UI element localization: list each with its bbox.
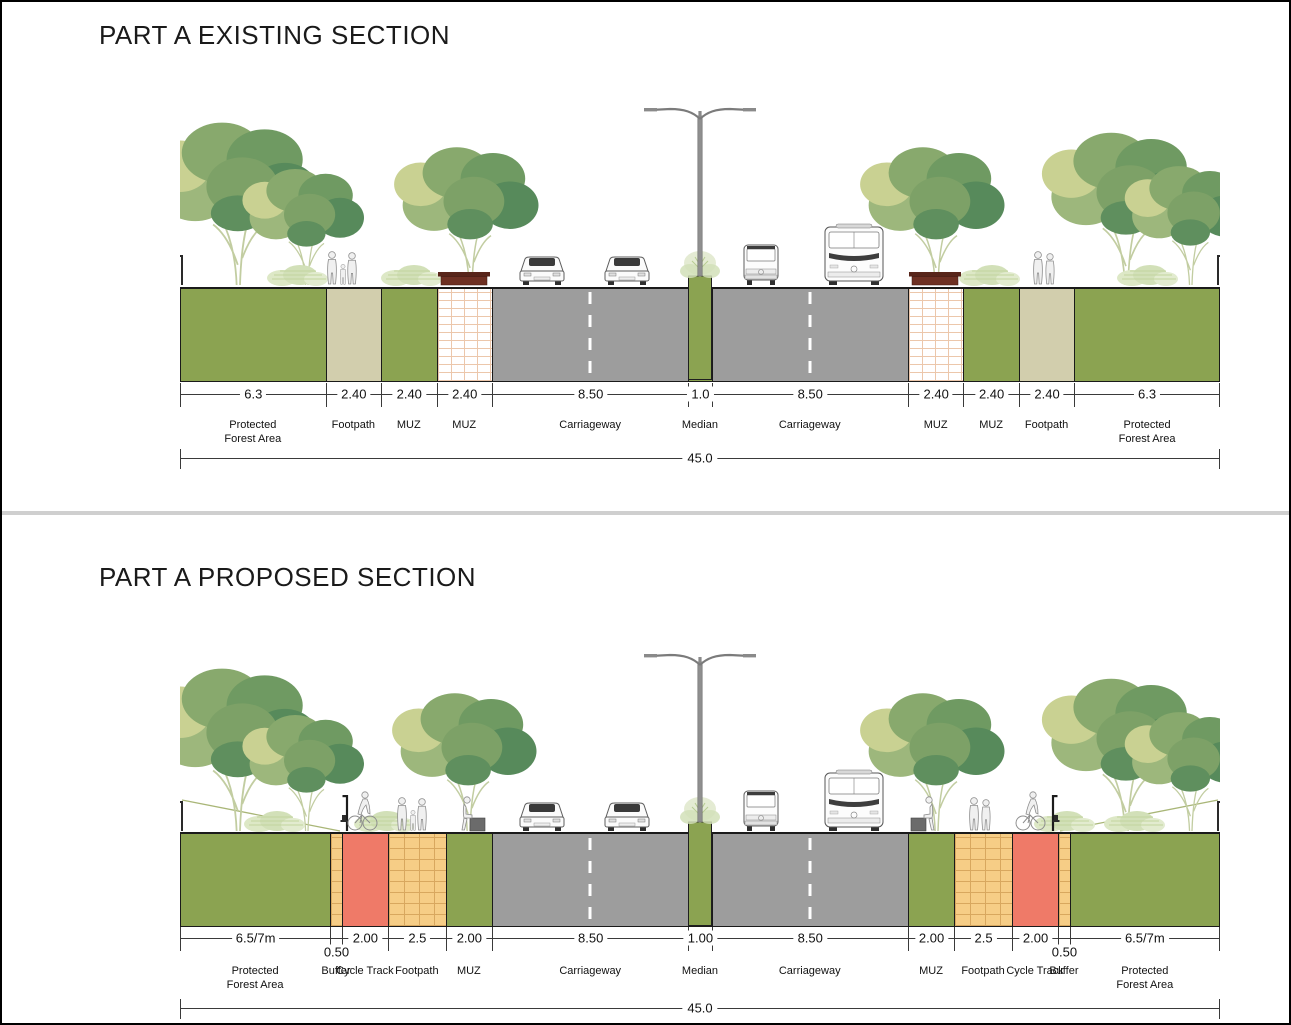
band-protected-forest <box>180 289 326 381</box>
dim-value: 2.00 <box>349 931 382 946</box>
bush-icon <box>267 265 328 286</box>
band-buffer <box>330 834 342 926</box>
bush-icon <box>1104 811 1165 832</box>
bush-icon <box>381 265 442 286</box>
dim-cell: 2.00 <box>446 927 492 951</box>
band-carriageway <box>712 289 908 381</box>
dim-value: 2.40 <box>975 387 1008 402</box>
tree-icon <box>1125 166 1220 285</box>
median-shrub-icon <box>680 797 720 824</box>
band-cycle-track <box>1012 834 1058 926</box>
dim-cell: 8.50 <box>712 383 908 407</box>
existing-total-dimension: 45.0 <box>180 449 1220 469</box>
segment-label: Carriageway <box>492 415 688 451</box>
dim-value: 0.50 <box>1048 945 1081 960</box>
retaining-wall-icon <box>180 802 182 831</box>
dim-cell: 6.3 <box>180 383 326 407</box>
band-carriageway <box>492 289 688 381</box>
pedestrian-pair-icon <box>1034 252 1055 284</box>
signpost-icon <box>341 795 349 831</box>
car-icon <box>520 257 564 285</box>
segment-label: Median <box>688 415 711 451</box>
bus-icon <box>825 770 883 831</box>
segment-label: MUZ <box>908 415 963 451</box>
retaining-wall-icon <box>1218 256 1220 285</box>
dim-value: 8.50 <box>794 931 827 946</box>
dim-cell: 2.40 <box>381 383 436 407</box>
proposed-dimension-row: 6.5/7m 0.50 2.00 2.5 2.00 8.50 1.00 8.50… <box>180 927 1220 951</box>
dim-value: 6.3 <box>1134 387 1160 402</box>
dim-value: 8.50 <box>574 387 607 402</box>
dim-value: 2.40 <box>393 387 426 402</box>
dim-cell: 6.5/7m <box>180 927 330 951</box>
tree-icon <box>180 123 318 285</box>
dim-value: 2.40 <box>337 387 370 402</box>
dim-value: 6.5/7m <box>1121 931 1169 946</box>
median-shrub-icon <box>680 251 720 278</box>
segment-label: MUZ <box>437 415 492 451</box>
existing-section-panel: PART A EXISTING SECTION <box>2 2 1289 514</box>
planter-icon <box>438 272 490 285</box>
segment-label: Footpath <box>1019 415 1074 451</box>
dim-value: 6.5/7m <box>232 931 280 946</box>
bus-icon <box>825 224 883 285</box>
band-footpath <box>326 289 381 381</box>
tree-icon <box>394 147 538 285</box>
band-protected-forest <box>1074 289 1220 381</box>
car-icon <box>605 257 649 285</box>
proposed-band-strip <box>180 832 1220 927</box>
segment-label: Median <box>688 961 711 997</box>
segment-label: Protected Forest Area <box>180 961 330 997</box>
proposed-section-scene <box>180 646 1220 927</box>
total-value: 45.0 <box>682 1001 717 1016</box>
band-muz <box>446 834 492 926</box>
dim-cell: 0.50 <box>1058 927 1070 951</box>
tree-icon <box>1125 712 1220 831</box>
dim-cell: 2.00 <box>908 927 954 951</box>
dim-cell: 1.0 <box>688 383 711 407</box>
tree-icon <box>180 669 318 831</box>
signpost-icon <box>1052 795 1060 831</box>
segment-label: Protected Forest Area <box>180 415 326 451</box>
proposed-section-title: PART A PROPOSED SECTION <box>99 562 476 593</box>
dim-value: 2.40 <box>920 387 953 402</box>
existing-section-title: PART A EXISTING SECTION <box>99 20 450 51</box>
band-protected-forest <box>180 834 330 926</box>
segment-label: MUZ <box>446 961 492 997</box>
dim-cell: 6.3 <box>1074 383 1220 407</box>
pedestrian-family-icon <box>398 798 427 831</box>
tree-icon <box>1042 679 1202 831</box>
segment-label: Buffer <box>1058 961 1070 997</box>
band-muz <box>381 289 436 381</box>
band-cycle-track <box>342 834 388 926</box>
tree-icon <box>860 147 1004 285</box>
segment-label: Carriageway <box>712 961 908 997</box>
proposed-total-dimension: 45.0 <box>180 999 1220 1019</box>
van-icon <box>744 791 778 831</box>
band-footpath <box>1019 289 1074 381</box>
segment-label: MUZ <box>381 415 436 451</box>
dim-cell: 2.5 <box>954 927 1012 951</box>
total-value: 45.0 <box>682 451 717 466</box>
band-median <box>688 289 711 381</box>
tree-icon <box>242 169 364 285</box>
dim-value: 2.00 <box>453 931 486 946</box>
bush-icon <box>1117 265 1178 286</box>
cyclist-icon <box>1016 792 1045 830</box>
planter-icon <box>909 272 961 285</box>
band-muz <box>963 289 1018 381</box>
dim-value: 0.50 <box>320 945 353 960</box>
tree-icon <box>860 693 1004 831</box>
band-median <box>688 834 711 926</box>
dim-cell: 2.40 <box>963 383 1018 407</box>
drawing-sheet: PART A EXISTING SECTION <box>0 0 1291 1025</box>
band-protected-forest <box>1070 834 1220 926</box>
bush-icon <box>1034 811 1095 832</box>
pedestrian-pair-icon <box>970 798 991 830</box>
dim-cell: 2.40 <box>908 383 963 407</box>
dim-cell: 2.40 <box>326 383 381 407</box>
dim-cell: 6.5/7m <box>1070 927 1220 951</box>
segment-label: Protected Forest Area <box>1070 961 1220 997</box>
segment-label: Footpath <box>954 961 1012 997</box>
proposed-label-row: Protected Forest Area Buffer Cycle Track… <box>180 961 1220 997</box>
band-carriageway <box>492 834 688 926</box>
band-muz-paved <box>908 289 963 381</box>
proposed-section-panel: PART A PROPOSED SECTION <box>2 515 1289 1025</box>
tree-icon <box>1042 133 1202 285</box>
segment-label: MUZ <box>963 415 1018 451</box>
band-muz-paved <box>437 289 492 381</box>
dim-cell: 2.40 <box>437 383 492 407</box>
dim-value: 2.40 <box>448 387 481 402</box>
band-footpath <box>954 834 1012 926</box>
band-buffer <box>1058 834 1070 926</box>
dim-value: 2.5 <box>971 931 997 946</box>
bush-icon <box>959 265 1020 286</box>
dim-cell: 8.50 <box>492 383 688 407</box>
dim-cell: 8.50 <box>712 927 908 951</box>
cyclist-icon <box>348 792 377 830</box>
dim-value: 2.00 <box>1019 931 1052 946</box>
segment-label: Cycle Track <box>342 961 388 997</box>
segment-label: Footpath <box>388 961 446 997</box>
segment-label: Footpath <box>326 415 381 451</box>
dim-value: 2.5 <box>404 931 430 946</box>
dim-value: 2.40 <box>1030 387 1063 402</box>
segment-label: Carriageway <box>712 415 908 451</box>
existing-band-strip <box>180 287 1220 382</box>
segment-label: MUZ <box>908 961 954 997</box>
existing-dimension-row: 6.3 2.40 2.40 2.40 8.50 1.0 8.50 2.40 2.… <box>180 383 1220 407</box>
van-icon <box>744 245 778 285</box>
existing-label-row: Protected Forest Area Footpath MUZ MUZ C… <box>180 415 1220 451</box>
segment-label: Carriageway <box>492 961 688 997</box>
dim-cell: 2.5 <box>388 927 446 951</box>
dim-value: 8.50 <box>574 931 607 946</box>
segment-label: Protected Forest Area <box>1074 415 1220 451</box>
seated-person-bench-icon <box>462 797 485 831</box>
dim-value: 1.0 <box>687 387 713 402</box>
car-icon <box>520 803 564 831</box>
seated-person-bench-icon <box>911 797 934 831</box>
dim-cell: 8.50 <box>492 927 688 951</box>
bush-icon <box>354 811 415 832</box>
streetlight-icon <box>644 108 756 276</box>
dim-value: 1.00 <box>684 931 717 946</box>
dim-value: 6.3 <box>240 387 266 402</box>
band-muz <box>908 834 954 926</box>
dim-cell: 0.50 <box>330 927 342 951</box>
pedestrian-family-icon <box>328 252 357 285</box>
band-carriageway <box>712 834 908 926</box>
dim-cell: 2.40 <box>1019 383 1074 407</box>
band-footpath <box>388 834 446 926</box>
retaining-wall-icon <box>180 256 182 285</box>
grading-slope-line <box>182 800 340 831</box>
dim-value: 2.00 <box>915 931 948 946</box>
tree-icon <box>392 693 536 831</box>
streetlight-icon <box>644 654 756 822</box>
dim-cell: 1.00 <box>688 927 711 951</box>
bush-icon <box>244 811 305 832</box>
retaining-wall-icon <box>1218 802 1220 831</box>
tree-icon <box>242 715 364 831</box>
car-icon <box>605 803 649 831</box>
dim-value: 8.50 <box>794 387 827 402</box>
existing-section-scene <box>180 105 1220 382</box>
grading-slope-line <box>1060 800 1218 831</box>
